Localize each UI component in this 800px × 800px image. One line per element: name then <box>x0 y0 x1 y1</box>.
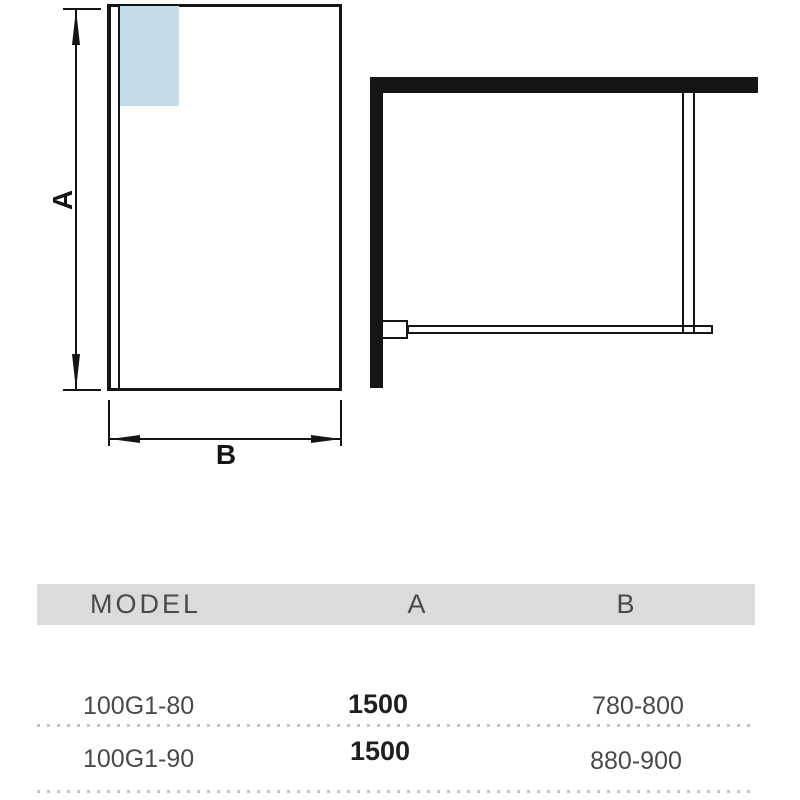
dim-b-label: B <box>196 441 256 469</box>
header-b: B <box>597 591 657 618</box>
table-header-row: MODEL A B <box>37 584 755 625</box>
dim-a-label: A <box>49 183 77 217</box>
glass-panel-edge-outer <box>682 93 684 333</box>
header-a: A <box>388 591 448 618</box>
wall-left <box>370 77 383 388</box>
model-cell: 100G1-80 <box>83 694 213 719</box>
table-bottom-separator <box>37 790 755 793</box>
a-value-cell: 1500 <box>320 739 440 764</box>
support-bar <box>407 325 713 334</box>
dim-a-top-tick <box>63 8 101 10</box>
glass-shade <box>120 6 179 106</box>
arrow-up-icon <box>72 9 80 45</box>
wall-bracket <box>381 320 408 339</box>
shower-screen-spec-sheet: A B MODEL A B 100G1-80 1500 780-800 <box>0 0 800 800</box>
wall-top <box>370 77 758 93</box>
dim-a-bottom-tick <box>63 389 101 391</box>
b-value-cell: 780-800 <box>568 694 708 719</box>
header-model: MODEL <box>90 591 201 618</box>
row-separator <box>37 724 755 727</box>
arrow-down-icon <box>72 354 80 390</box>
glass-panel-edge-inner <box>693 93 695 333</box>
model-cell: 100G1-90 <box>83 747 213 772</box>
arrow-right-icon <box>311 435 341 443</box>
arrow-left-icon <box>110 435 140 443</box>
b-value-cell: 880-900 <box>566 749 706 774</box>
a-value-cell: 1500 <box>318 692 438 717</box>
